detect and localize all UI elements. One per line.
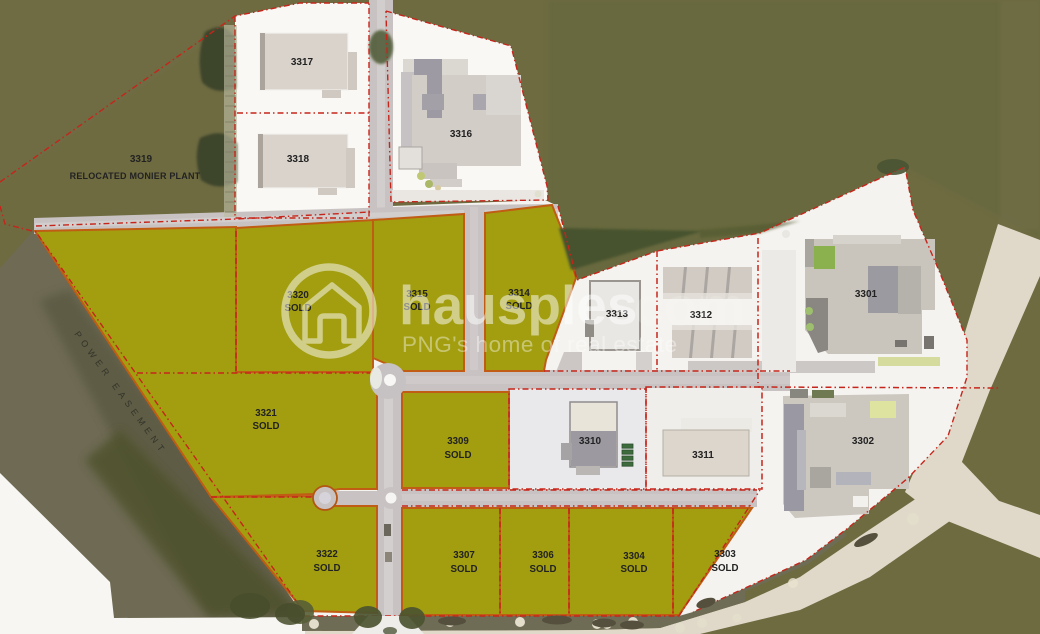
svg-text:3310: 3310 — [579, 436, 602, 447]
svg-text:3303: 3303 — [714, 549, 736, 560]
svg-text:SOLD: SOLD — [621, 564, 648, 575]
svg-text:3304: 3304 — [623, 551, 645, 562]
svg-text:SOLD: SOLD — [253, 421, 280, 432]
svg-text:3317: 3317 — [291, 57, 314, 68]
svg-text:3311: 3311 — [692, 450, 714, 461]
svg-text:3306: 3306 — [532, 550, 554, 561]
svg-text:3309: 3309 — [447, 436, 469, 447]
svg-text:SOLD: SOLD — [530, 564, 557, 575]
svg-text:3307: 3307 — [453, 550, 475, 561]
svg-text:SOLD: SOLD — [712, 563, 739, 574]
svg-text:3319: 3319 — [130, 154, 153, 165]
svg-text:RELOCATED MONIER PLANT: RELOCATED MONIER PLANT — [70, 171, 201, 181]
svg-text:3322: 3322 — [316, 549, 338, 560]
svg-text:3321: 3321 — [255, 408, 277, 419]
svg-text:3302: 3302 — [852, 436, 875, 447]
svg-text:SOLD: SOLD — [451, 564, 478, 575]
svg-text:hausples: hausples — [399, 274, 637, 336]
svg-text:3316: 3316 — [450, 129, 473, 140]
svg-text:SOLD: SOLD — [314, 563, 341, 574]
svg-text:com: com — [634, 277, 745, 337]
svg-text:SOLD: SOLD — [445, 450, 472, 461]
svg-text:3318: 3318 — [287, 154, 310, 165]
svg-text:3301: 3301 — [855, 289, 878, 300]
svg-text:PNG's home of real estate: PNG's home of real estate — [402, 332, 678, 357]
